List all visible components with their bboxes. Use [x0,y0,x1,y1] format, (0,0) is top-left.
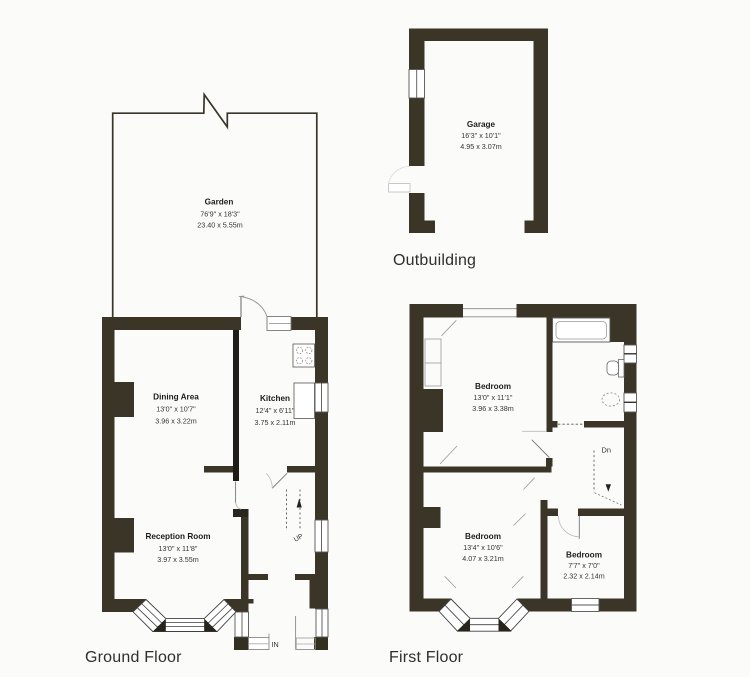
svg-text:Kitchen: Kitchen [260,394,290,403]
svg-text:12'4" x 6'11": 12'4" x 6'11" [256,406,295,415]
svg-text:4.07 x 3.21m: 4.07 x 3.21m [462,554,504,563]
svg-text:4.95 x 3.07m: 4.95 x 3.07m [460,142,502,151]
svg-text:13'0" x 10'7": 13'0" x 10'7" [156,405,196,414]
svg-text:23.40 x 5.55m: 23.40 x 5.55m [197,221,243,230]
svg-text:Garage: Garage [467,120,496,129]
svg-text:Dining Area: Dining Area [153,393,199,402]
svg-text:Bedroom: Bedroom [475,382,511,391]
svg-text:3.75 x 2.11m: 3.75 x 2.11m [254,418,295,427]
svg-text:First Floor: First Floor [389,649,464,666]
svg-text:3.97 x 3.55m: 3.97 x 3.55m [157,555,199,564]
svg-text:3.96 x 3.38m: 3.96 x 3.38m [472,404,514,413]
svg-text:13'4" x 10'6": 13'4" x 10'6" [463,543,503,552]
svg-text:Ground Floor: Ground Floor [85,649,182,666]
svg-text:Dn: Dn [602,446,611,455]
svg-text:16'3" x 10'1": 16'3" x 10'1" [461,131,501,140]
svg-text:Bedroom: Bedroom [465,532,501,541]
svg-text:2.32 x 2.14m: 2.32 x 2.14m [563,572,605,581]
svg-text:Bedroom: Bedroom [566,551,602,560]
svg-text:Garden: Garden [205,198,234,207]
svg-text:7'7" x 7'0": 7'7" x 7'0" [568,561,600,570]
svg-text:IN: IN [272,640,279,649]
svg-text:Reception Room: Reception Room [145,532,210,541]
svg-text:3.96 x 3.22m: 3.96 x 3.22m [155,417,197,426]
svg-text:Outbuilding: Outbuilding [393,252,476,269]
svg-text:76'9" x 18'3": 76'9" x 18'3" [200,210,240,219]
svg-text:13'0" x 11'1": 13'0" x 11'1" [474,393,513,402]
svg-text:13'0" x 11'8": 13'0" x 11'8" [159,544,198,553]
